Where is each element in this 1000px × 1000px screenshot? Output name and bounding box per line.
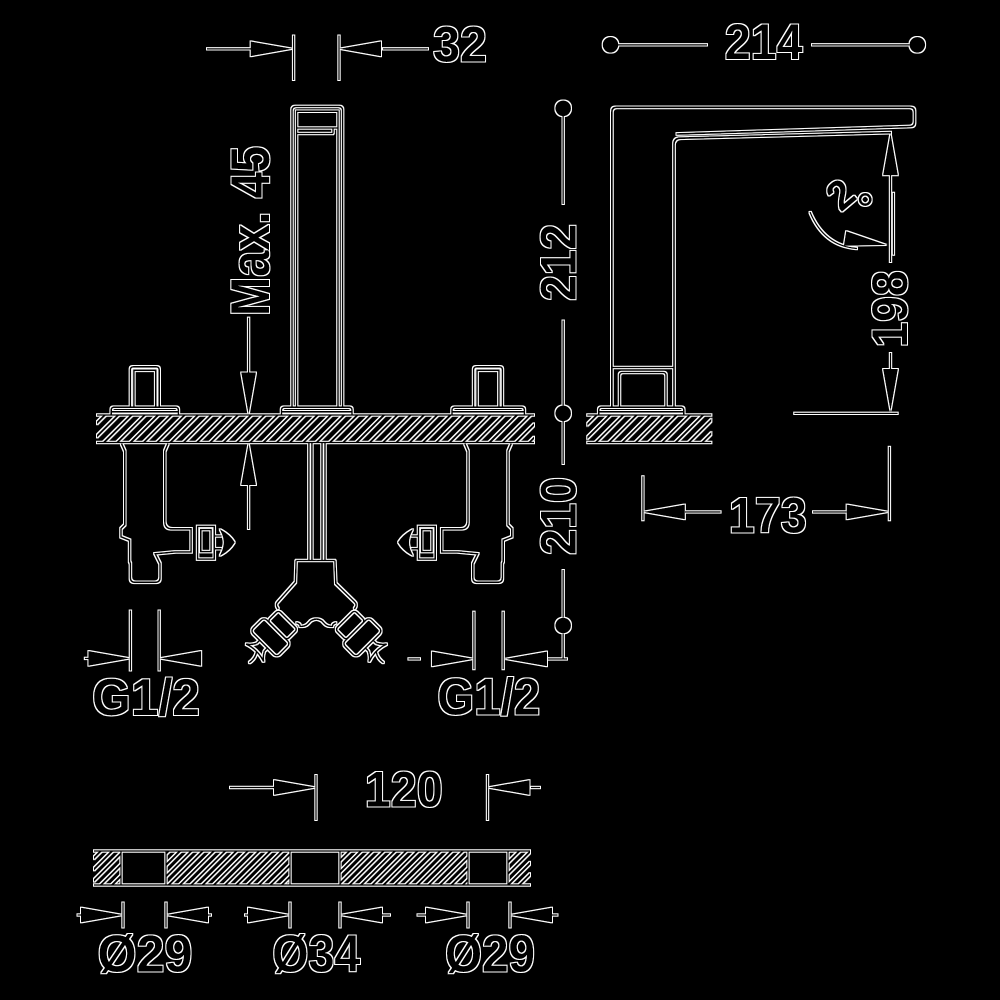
svg-text:Ø34: Ø34	[272, 926, 360, 984]
svg-text:G1/2: G1/2	[92, 669, 200, 727]
svg-text:Max. 45: Max. 45	[219, 146, 281, 316]
svg-text:173: 173	[729, 488, 807, 544]
svg-text:32: 32	[433, 17, 487, 73]
svg-text:210: 210	[531, 477, 587, 555]
svg-text:Ø29: Ø29	[98, 926, 193, 984]
svg-text:198: 198	[862, 271, 918, 348]
svg-text:G1/2: G1/2	[437, 669, 540, 727]
svg-text:212: 212	[531, 224, 587, 301]
svg-text:120: 120	[365, 762, 443, 818]
svg-text:Ø29: Ø29	[445, 926, 535, 984]
svg-text:214: 214	[725, 14, 803, 70]
